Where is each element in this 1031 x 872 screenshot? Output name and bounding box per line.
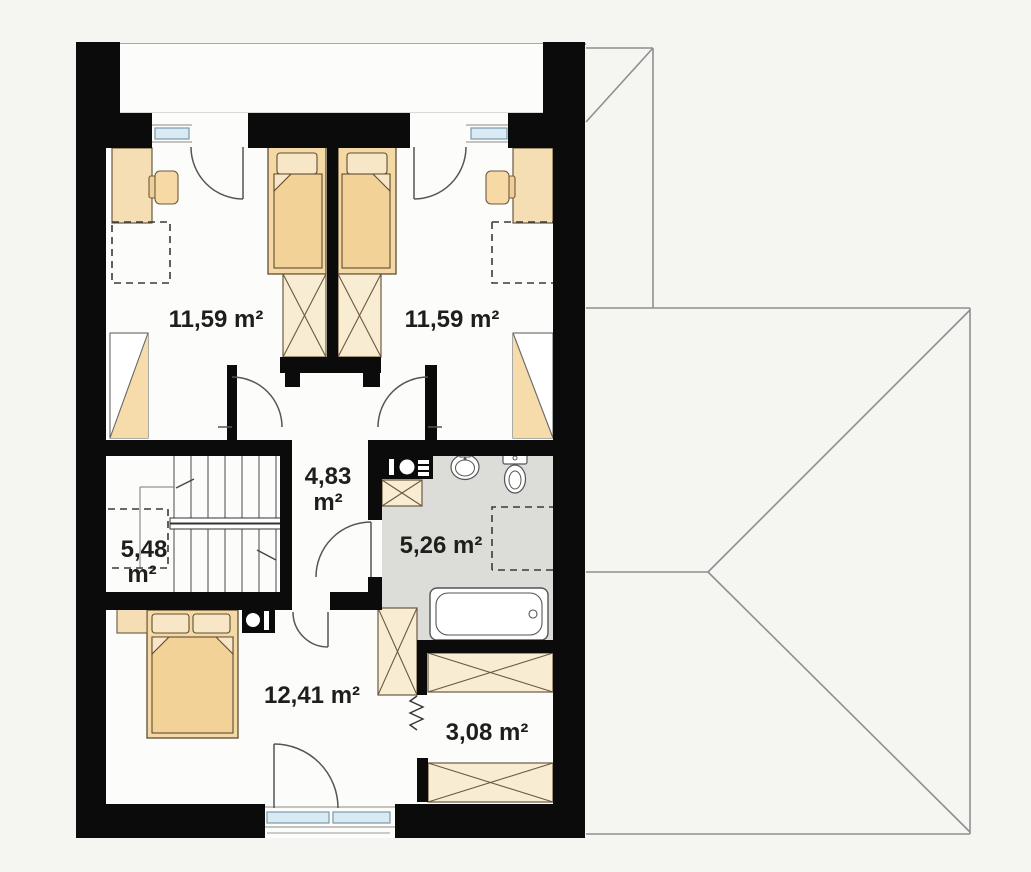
room-area-label-bedroom-top-right: 11,59 m² [405, 306, 500, 333]
wall [508, 113, 553, 148]
desk-icon [513, 148, 553, 223]
wall [327, 145, 338, 358]
vent-flue-icon [242, 608, 275, 633]
sloped-ceiling-closet-icon [513, 333, 553, 438]
wall [102, 592, 292, 610]
toilet-icon [503, 453, 527, 493]
wall [76, 804, 265, 838]
sloped-ceiling-closet-icon [110, 333, 148, 438]
window-icon [466, 125, 508, 142]
room-area-label-staircase-value: 5,48 [121, 536, 168, 563]
wall [553, 113, 585, 838]
roof-hip-upper [586, 48, 653, 122]
room-area-label-bedroom-top-left: 11,59 m² [169, 306, 264, 333]
wall [425, 365, 437, 440]
roof-hip-main-lower [708, 572, 970, 832]
wardrobe-crossed-icon [378, 608, 417, 695]
stair-railing [170, 524, 285, 529]
floor-plan: 11,59 m² 11,59 m² 4,83 m² 5,48 m² 5,26 m… [0, 0, 1031, 872]
wall [106, 42, 120, 113]
room-area-label-bathroom: 5,26 m² [400, 532, 483, 559]
window-icon [152, 125, 192, 142]
wall [417, 640, 553, 653]
wall [102, 440, 292, 456]
roof-hip-main-upper [708, 310, 970, 572]
desk-icon [112, 148, 152, 223]
wardrobe-crossed-icon [283, 274, 326, 357]
room-area-label-hall-value: 4,83 [305, 463, 352, 490]
washer-dryer-icon [382, 455, 433, 479]
wardrobe-crossed-icon [382, 480, 422, 506]
bathtub-icon [430, 588, 548, 640]
wall [363, 373, 380, 387]
wall [395, 804, 585, 838]
wall [368, 577, 382, 610]
single-bed-icon [338, 147, 396, 274]
wall [285, 373, 300, 387]
balcony-strip [120, 44, 543, 113]
wall [280, 357, 381, 373]
wall [543, 42, 585, 113]
stair-railing [170, 518, 282, 523]
room-area-label-staircase-unit: m² [127, 561, 156, 588]
wall [417, 653, 427, 695]
single-bed-icon [268, 147, 326, 274]
wall [280, 456, 292, 592]
nightstand-icon [117, 608, 147, 633]
room-area-label-bedroom-bottom: 12,41 m² [264, 682, 360, 709]
wall [382, 440, 553, 456]
room-area-label-wardrobe: 3,08 m² [446, 719, 529, 746]
wall [76, 42, 106, 838]
wardrobe-crossed-icon [428, 763, 553, 802]
wardrobe-crossed-icon [338, 274, 381, 357]
double-bed-icon [147, 610, 238, 738]
wall [417, 758, 428, 802]
wardrobe-crossed-icon [428, 653, 553, 692]
wall [248, 113, 410, 148]
wall [106, 113, 152, 148]
wall [368, 440, 382, 520]
room-area-label-hall-unit: m² [313, 489, 342, 516]
floor-plan-drawing: 11,59 m² 11,59 m² 4,83 m² 5,48 m² 5,26 m… [0, 0, 1031, 872]
